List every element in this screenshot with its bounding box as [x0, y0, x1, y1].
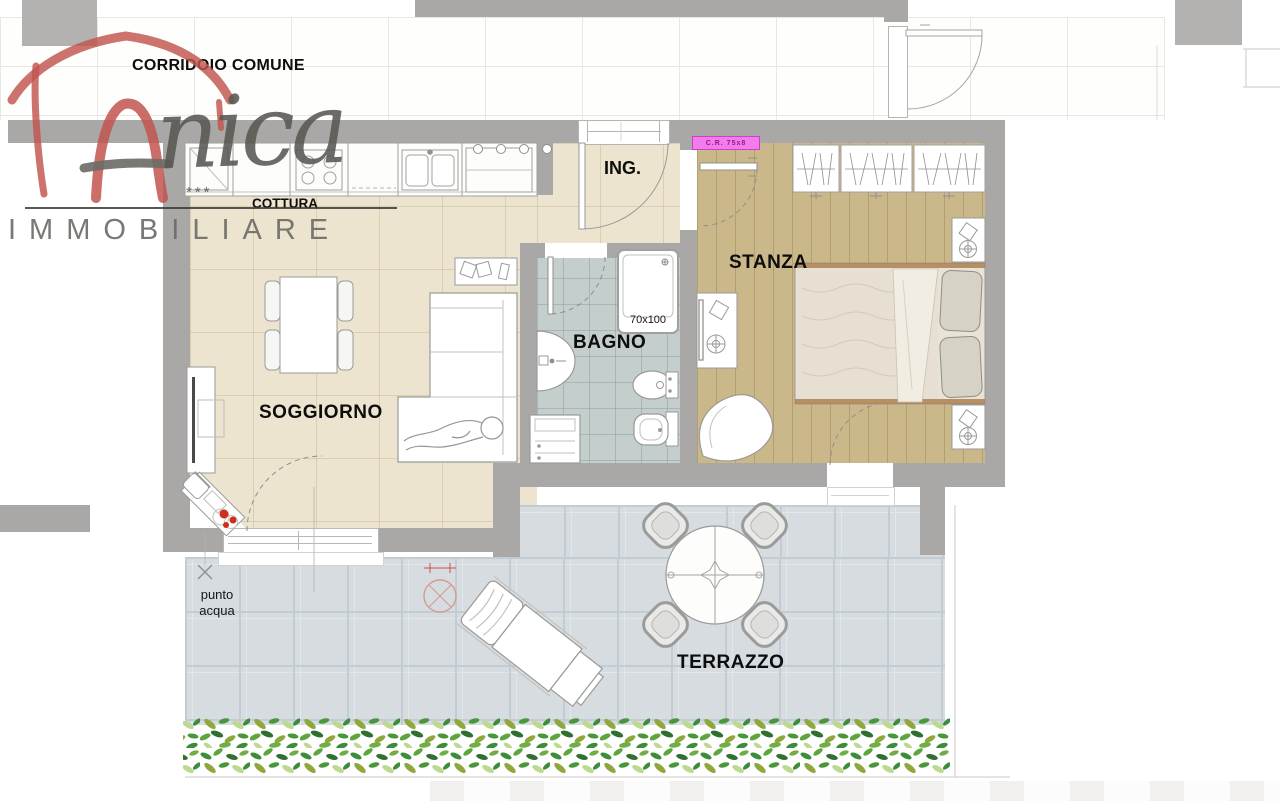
nightstand-top	[952, 218, 985, 262]
corridor-label: CORRIDOIO COMUNE	[132, 57, 305, 75]
pillow	[939, 270, 982, 332]
round-terrace-table-set	[639, 499, 792, 652]
dressing-table	[697, 293, 737, 368]
kitchen-counter	[185, 143, 537, 196]
floor-drain	[424, 563, 456, 612]
wardrobe	[793, 145, 985, 199]
dining-chair	[265, 330, 280, 370]
furniture-layer	[0, 0, 1280, 807]
floor-plan-canvas: C.R. 75x8	[0, 0, 1280, 807]
water-point-note: punto acqua	[187, 587, 247, 619]
nightstand-bottom	[952, 405, 985, 449]
dining-table	[280, 277, 337, 373]
water-point-cross	[198, 532, 212, 579]
entrance-label: ING.	[604, 158, 641, 179]
dining-chair	[338, 281, 353, 321]
shower-size-note: 70x100	[618, 314, 678, 326]
kitchen-label: COTTURA	[252, 196, 318, 211]
bathroom-label: BAGNO	[573, 332, 646, 354]
dining-set	[265, 277, 353, 373]
sun-lounger	[457, 576, 611, 714]
bidet	[633, 371, 678, 399]
wall-shelf	[455, 258, 517, 285]
tv-cabinet	[187, 367, 224, 473]
roller-box-badge: C.R. 75x8	[692, 136, 760, 150]
roller-box-text: C.R. 75x8	[706, 140, 747, 147]
water-point-line2: acqua	[187, 603, 247, 619]
pillow	[939, 336, 982, 398]
dining-chair	[338, 330, 353, 370]
toilet	[634, 412, 678, 446]
dining-chair	[265, 281, 280, 321]
terrace-label: TERRAZZO	[677, 652, 784, 674]
hedge	[183, 716, 950, 774]
tv-screen	[192, 377, 195, 463]
living-room-label: SOGGIORNO	[259, 402, 383, 424]
washing-machine	[530, 415, 580, 463]
hand-basin	[537, 331, 575, 391]
sofa-with-person	[398, 293, 517, 462]
water-point-line1: punto	[187, 587, 247, 603]
bedroom-label: STANZA	[729, 252, 808, 274]
double-bed	[795, 263, 985, 404]
